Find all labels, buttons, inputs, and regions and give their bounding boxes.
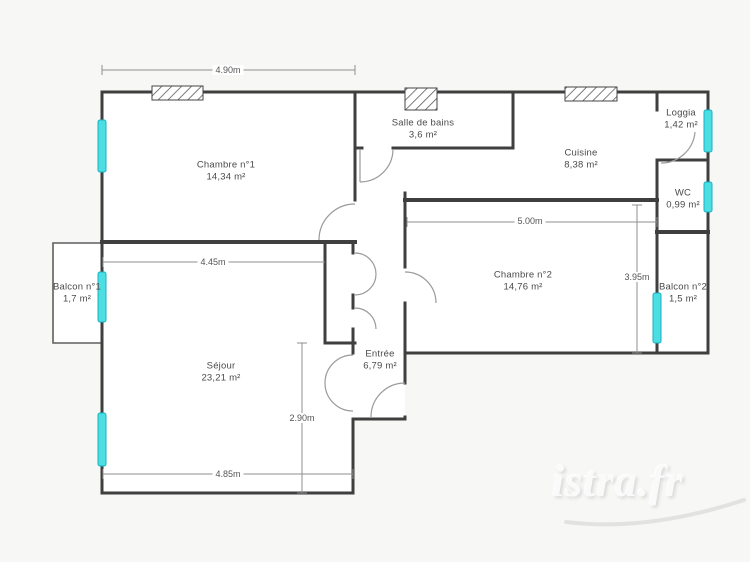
room-area: 1,42 m² <box>664 120 698 132</box>
room-label-cuisine: Cuisine 8,38 m² <box>564 148 598 173</box>
room-name: Entrée <box>365 349 394 360</box>
room-name: Cuisine <box>564 148 597 159</box>
window-wc <box>704 182 712 212</box>
room-area: 8,38 m² <box>564 160 598 172</box>
dim-label-2-90m: 2.90m <box>286 413 317 423</box>
window-sejour <box>98 413 106 466</box>
dim-label-3-95m: 3.95m <box>621 272 652 282</box>
room-label-balcon-1: Balcon n°1 1,7 m² <box>53 282 101 307</box>
room-name: Chambre n°2 <box>494 270 552 281</box>
dim-label-4-45m: 4.45m <box>197 257 228 267</box>
room-label-salle-de-bains: Salle de bains 3,6 m² <box>392 118 454 143</box>
room-label-chambre-2: Chambre n°2 14,76 m² <box>494 270 552 295</box>
dim-label-5-00m: 5.00m <box>514 216 545 226</box>
dim-label-4-85m: 4.85m <box>212 469 243 479</box>
room-name: Séjour <box>207 361 236 372</box>
vent-cuisine <box>565 87 617 101</box>
room-area: 14,34 m² <box>197 172 255 184</box>
room-label-sejour: Séjour 23,21 m² <box>201 361 240 386</box>
room-name: Salle de bains <box>392 118 454 129</box>
window-loggia <box>704 110 712 152</box>
vent-chambre1 <box>152 86 203 100</box>
room-area: 3,6 m² <box>392 130 454 142</box>
dim-label-4-90m: 4.90m <box>212 65 243 75</box>
room-area: 0,99 m² <box>666 200 700 212</box>
room-label-wc: WC 0,99 m² <box>666 188 700 213</box>
room-label-entree: Entrée 6,79 m² <box>363 349 397 374</box>
room-area: 1,7 m² <box>53 294 101 306</box>
room-name: Balcon n°2 <box>659 282 707 293</box>
room-name: Chambre n°1 <box>197 160 255 171</box>
room-label-loggia: Loggia 1,42 m² <box>664 108 698 133</box>
room-label-chambre-1: Chambre n°1 14,34 m² <box>197 160 255 185</box>
room-area: 14,76 m² <box>494 282 552 294</box>
vent-salle-de-bains <box>405 88 437 110</box>
room-name: Balcon n°1 <box>53 282 101 293</box>
room-label-balcon-2: Balcon n°2 1,5 m² <box>659 282 707 307</box>
room-name: Loggia <box>666 108 696 119</box>
room-area: 23,21 m² <box>201 373 240 385</box>
room-area: 1,5 m² <box>659 294 707 306</box>
floorplan-page: Chambre n°1 14,34 m² Salle de bains 3,6 … <box>0 0 750 562</box>
window-chambre1 <box>98 120 106 172</box>
room-area: 6,79 m² <box>363 361 397 373</box>
room-name: WC <box>675 188 691 199</box>
room-fills <box>53 92 708 493</box>
